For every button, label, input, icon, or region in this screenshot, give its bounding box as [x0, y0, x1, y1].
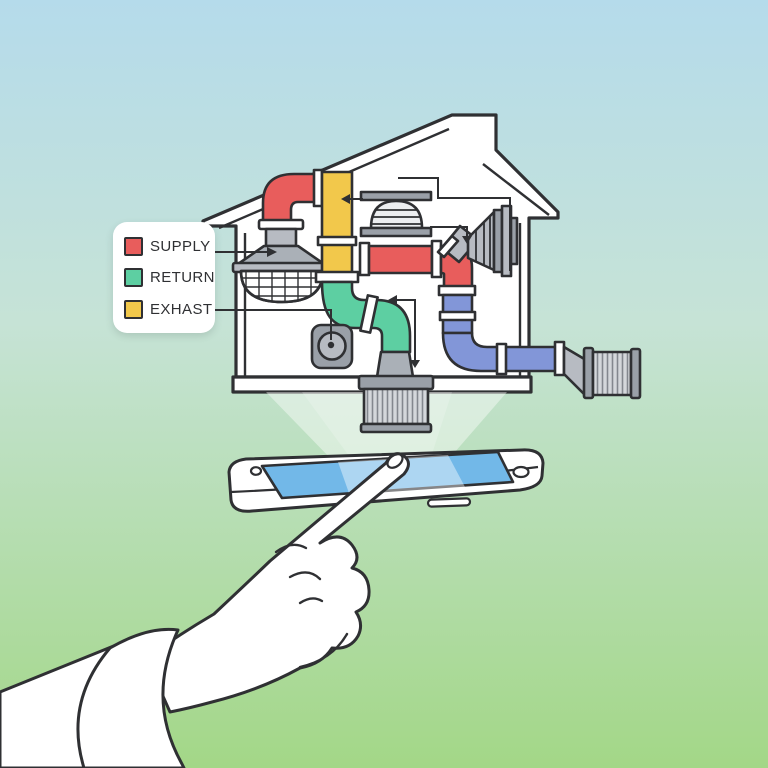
exhaust-color-swatch-icon: [124, 300, 143, 319]
exhaust-callout-dot: [328, 342, 334, 348]
legend-card: SUPPLY RETURN EXHAST: [113, 222, 215, 333]
phone-camera-icon: [251, 467, 261, 475]
legend-label-exhaust: EXHAST: [150, 302, 212, 317]
legend-label-return: RETURN: [150, 270, 215, 285]
hvac-illustration: [0, 0, 768, 768]
illustration-stage: SUPPLY RETURN EXHAST: [0, 0, 768, 768]
phone-speaker-slot-icon: [428, 498, 470, 506]
legend-item-supply: SUPPLY: [124, 237, 215, 256]
legend-item-exhaust: EXHAST: [124, 300, 215, 319]
legend-item-return: RETURN: [124, 268, 215, 287]
return-color-swatch-icon: [124, 268, 143, 287]
pointing-hand: [0, 451, 409, 768]
supply-color-swatch-icon: [124, 237, 143, 256]
phone-home-button[interactable]: [514, 467, 529, 477]
legend-label-supply: SUPPLY: [150, 239, 210, 254]
outdoor-vent: [564, 347, 640, 398]
